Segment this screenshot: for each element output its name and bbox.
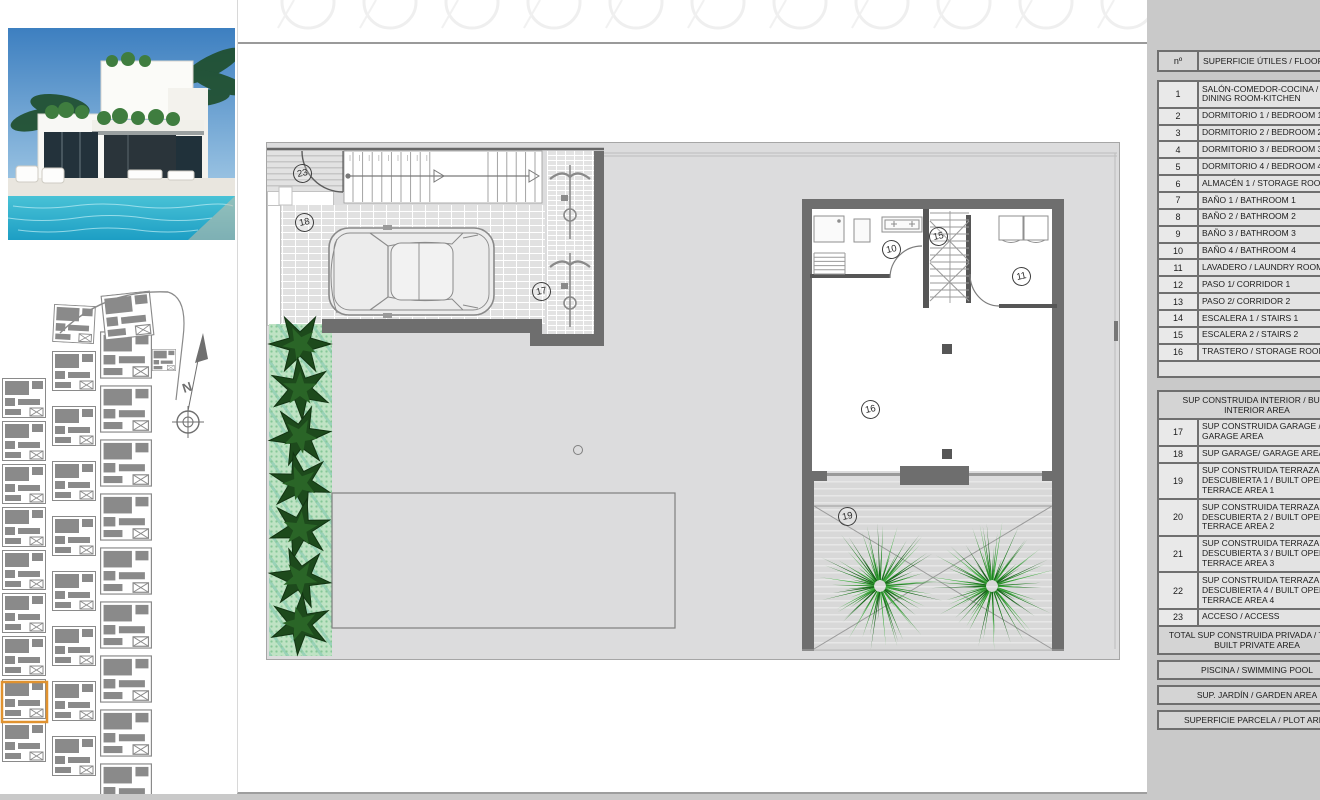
row-label: DORMITORIO 1 / BEDROOM 1 [1199,109,1320,124]
table-row: 23 ACCESO / ACCESS [1159,608,1320,625]
table-row: 18 SUP GARAGE/ GARAGE AREA [1159,445,1320,462]
row-number: 18 [1159,447,1199,462]
table-row: 5 DORMITORIO 4 / BEDROOM 4 [1159,157,1320,174]
table-row: 3 DORMITORIO 2 / BEDROOM 2 [1159,124,1320,141]
row-label: DORMITORIO 2 / BEDROOM 2 [1199,126,1320,141]
row-number: 9 [1159,227,1199,242]
plan-sheet-screen: N [0,0,1320,800]
row-label: LAVADERO / LAUNDRY ROOM [1199,260,1320,275]
table-row: 20 SUP CONSTRUIDA TERRAZA DESCUBIERTA 2 … [1159,498,1320,535]
row-label: PASO 1/ CORRIDOR 1 [1199,277,1320,292]
row-label: TRASTERO / STORAGE ROOM [1199,345,1320,360]
row-number: 21 [1159,537,1199,572]
table-row: 2 DORMITORIO 1 / BEDROOM 1 [1159,107,1320,124]
row-label: SUP CONSTRUIDA TERRAZA DESCUBIERTA 4 / B… [1199,573,1320,608]
table-row: 14 ESCALERA 1 / STAIRS 1 [1159,309,1320,326]
floor-area-table: nº SUPERFICIE ÚTILES / FLOOR AREA 1 SALÓ… [1157,50,1320,730]
row-label: SUP CONSTRUIDA GARAGE / BUILT GARAGE ARE… [1199,420,1320,445]
table-row: 22 SUP CONSTRUIDA TERRAZA DESCUBIERTA 4 … [1159,571,1320,608]
table-row: 17 SUP CONSTRUIDA GARAGE / BUILT GARAGE … [1159,420,1320,445]
row-label: DORMITORIO 4 / BEDROOM 4 [1199,159,1320,174]
built-areas-section: SUP CONSTRUIDA INTERIOR / BUILT INTERIOR… [1157,390,1320,656]
row-number: 8 [1159,210,1199,225]
table-row: 11 LAVADERO / LAUNDRY ROOM [1159,258,1320,275]
table-row: 6 ALMACÉN 1 / STORAGE ROOM [1159,174,1320,191]
row-label: SUP CONSTRUIDA TERRAZA DESCUBIERTA 1 / B… [1199,464,1320,499]
row-label: PASO 2/ CORRIDOR 2 [1199,294,1320,309]
table-row: 9 BAÑO 3 / BATHROOM 3 [1159,225,1320,242]
row-label: ESCALERA 1 / STAIRS 1 [1199,311,1320,326]
plan-linework [267,143,1119,659]
table-row: 12 PASO 1/ CORRIDOR 1 [1159,275,1320,292]
header-number-col: nº [1159,52,1199,70]
row-number: 10 [1159,244,1199,259]
interior-area-band: SUP CONSTRUIDA INTERIOR / BUILT INTERIOR… [1159,392,1320,418]
row-label: DORMITORIO 3 / BEDROOM 3 [1199,142,1320,157]
villa-photo [8,28,235,240]
table-row: 8 BAÑO 2 / BATHROOM 2 [1159,208,1320,225]
row-label: ALMACÉN 1 / STORAGE ROOM [1199,176,1320,191]
row-label: SUP CONSTRUIDA TERRAZA DESCUBIERTA 2 / B… [1199,500,1320,535]
table-row: 13 PASO 2/ CORRIDOR 2 [1159,292,1320,309]
row-label: BAÑO 3 / BATHROOM 3 [1199,227,1320,242]
sheet-top-rule [238,42,1153,44]
row-number: 23 [1159,610,1199,625]
drawing-sheet: 23 18 17 10 15 11 16 19 [237,0,1155,794]
table-row: 21 SUP CONSTRUIDA TERRAZA DESCUBIERTA 3 … [1159,535,1320,572]
row-number: 22 [1159,573,1199,608]
row-label: SALÓN-COMEDOR-COCINA / LIVING-DINING ROO… [1199,82,1320,107]
row-number: 12 [1159,277,1199,292]
total-private-band: TOTAL SUP CONSTRUIDA PRIVADA / TOTAL BUI… [1159,625,1320,653]
plot-band: SUPERFICIE PARCELA / PLOT AREA [1157,710,1320,730]
row-number: 13 [1159,294,1199,309]
table-row: 10 BAÑO 4 / BATHROOM 4 [1159,242,1320,259]
row-number: 15 [1159,328,1199,343]
row-label: SUP GARAGE/ GARAGE AREA [1199,447,1320,462]
empty-row [1159,360,1320,376]
header-label-col: SUPERFICIE ÚTILES / FLOOR AREA [1199,52,1320,70]
left-sidebar: N [0,0,237,800]
table-row: 19 SUP CONSTRUIDA TERRAZA DESCUBIERTA 1 … [1159,462,1320,499]
row-label: ACCESO / ACCESS [1199,610,1320,625]
table-row: 15 ESCALERA 2 / STAIRS 2 [1159,326,1320,343]
row-number: 6 [1159,176,1199,191]
table-row: 16 TRASTERO / STORAGE ROOM [1159,343,1320,360]
row-label: ESCALERA 2 / STAIRS 2 [1199,328,1320,343]
row-number: 7 [1159,193,1199,208]
row-label: SUP CONSTRUIDA TERRAZA DESCUBIERTA 3 / B… [1199,537,1320,572]
table-row: 1 SALÓN-COMEDOR-COCINA / LIVING-DINING R… [1159,82,1320,107]
garden-band: SUP. JARDÍN / GARDEN AREA [1157,685,1320,705]
floor-plan: 23 18 17 10 15 11 16 19 [266,142,1120,660]
bicycle-icon [550,165,590,239]
row-label: BAÑO 2 / BATHROOM 2 [1199,210,1320,225]
floor-area-panel: nº SUPERFICIE ÚTILES / FLOOR AREA 1 SALÓ… [1147,0,1320,800]
row-number: 3 [1159,126,1199,141]
row-number: 1 [1159,82,1199,107]
compass-north-label: N [180,379,194,396]
row-number: 4 [1159,142,1199,157]
row-number: 17 [1159,420,1199,445]
row-number: 20 [1159,500,1199,535]
page-bottom-edge [0,794,1320,800]
site-plan: N [0,285,237,800]
table-row: 4 DORMITORIO 3 / BEDROOM 3 [1159,140,1320,157]
watermark [238,0,1153,42]
row-number: 19 [1159,464,1199,499]
row-number: 14 [1159,311,1199,326]
rooms-section: 1 SALÓN-COMEDOR-COCINA / LIVING-DINING R… [1157,80,1320,378]
row-label: BAÑO 4 / BATHROOM 4 [1199,244,1320,259]
pool-band: PISCINA / SWIMMING POOL [1157,660,1320,680]
table-header: nº SUPERFICIE ÚTILES / FLOOR AREA [1157,50,1320,72]
table-row: 7 BAÑO 1 / BATHROOM 1 [1159,191,1320,208]
row-number: 2 [1159,109,1199,124]
car-icon [329,225,494,318]
row-number: 16 [1159,345,1199,360]
villa-photo-art [8,28,235,240]
row-number: 5 [1159,159,1199,174]
row-label: BAÑO 1 / BATHROOM 1 [1199,193,1320,208]
row-number: 11 [1159,260,1199,275]
